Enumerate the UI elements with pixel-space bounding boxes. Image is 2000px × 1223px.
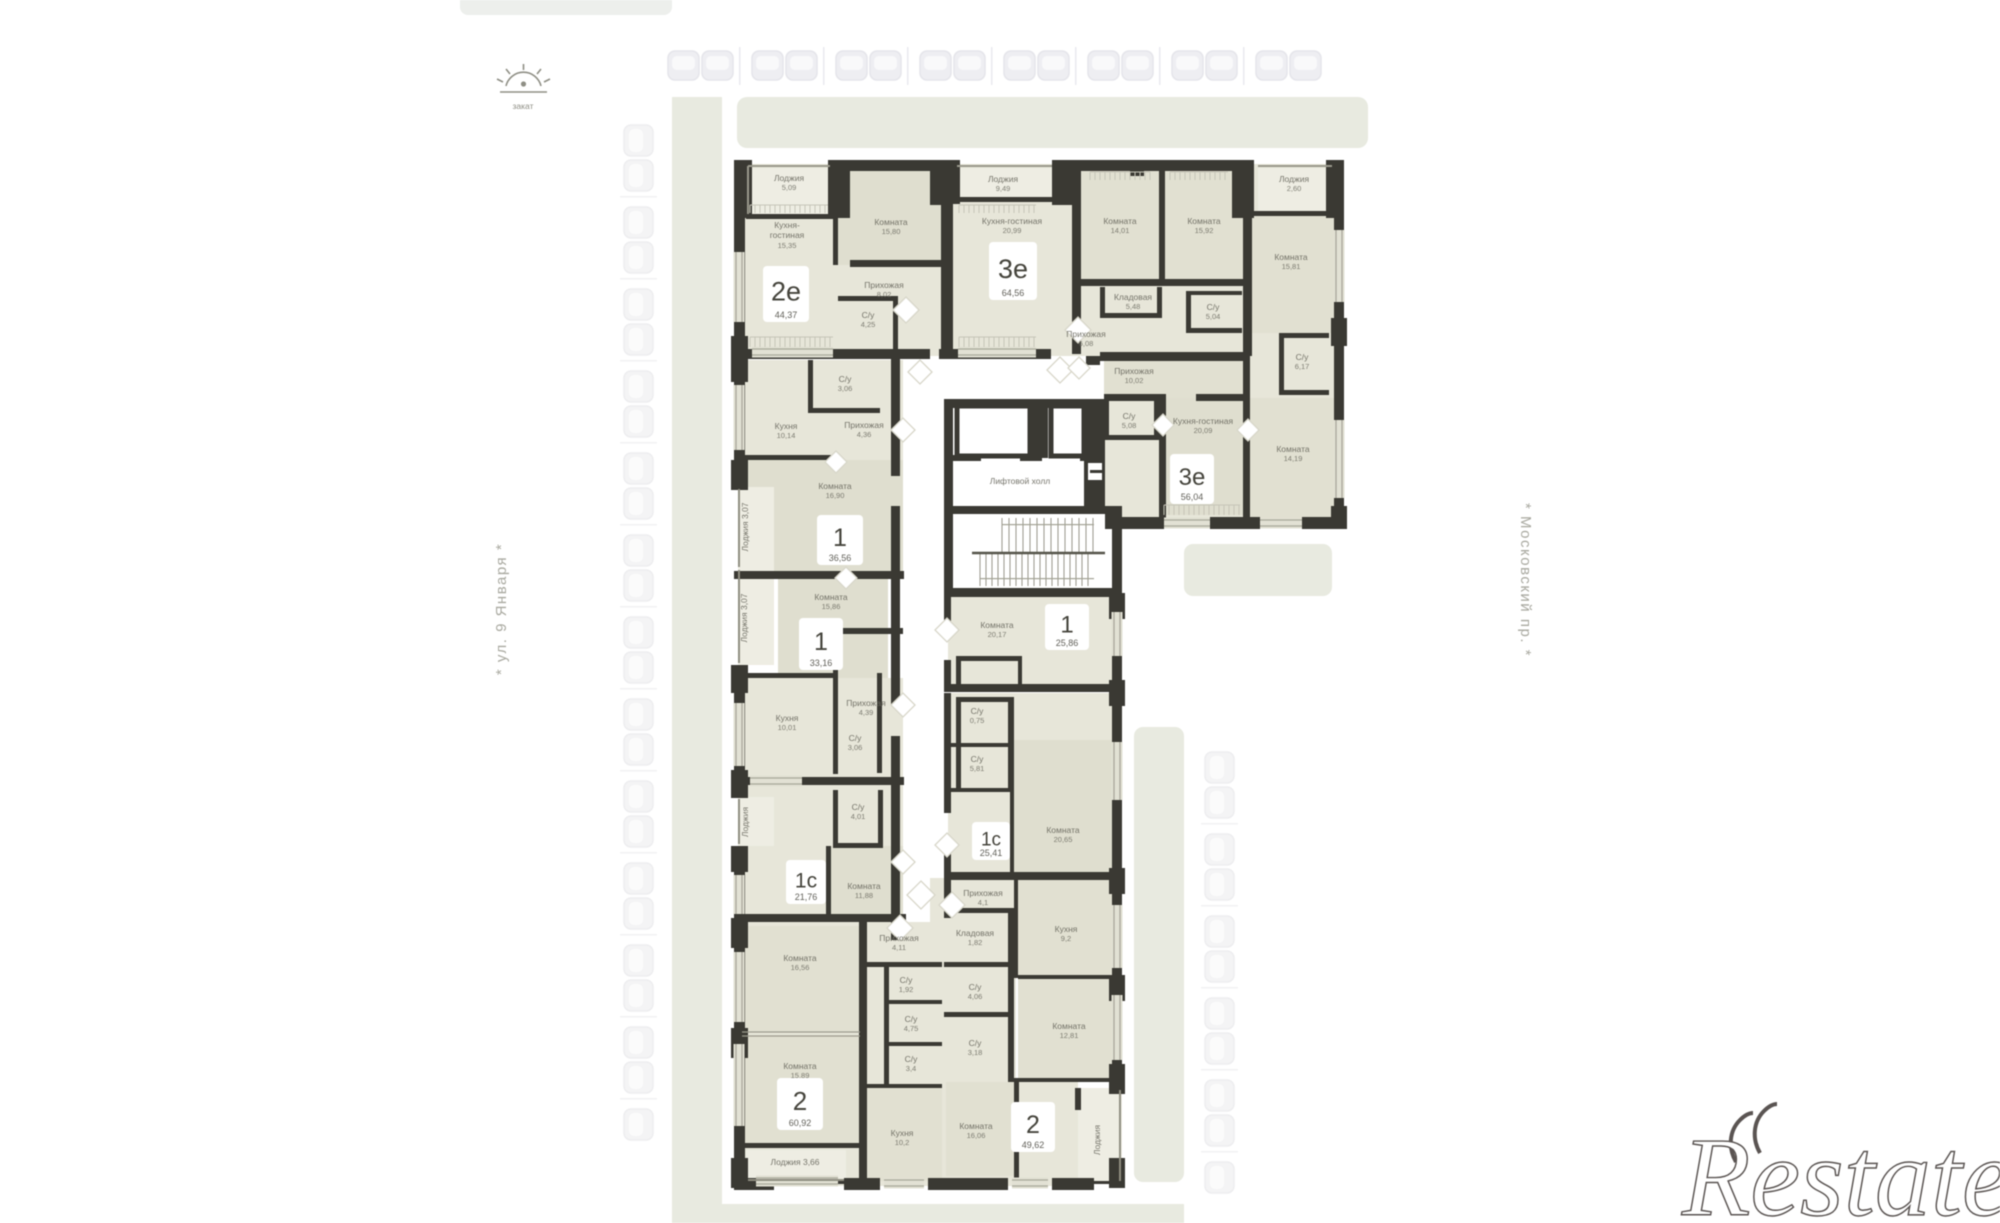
svg-text:12,81: 12,81	[1060, 1031, 1079, 1040]
svg-text:С/у: С/у	[905, 1054, 919, 1064]
svg-text:Кухня: Кухня	[1055, 924, 1078, 934]
svg-text:16,56: 16,56	[791, 963, 810, 972]
svg-text:Прихожая: Прихожая	[1066, 329, 1106, 339]
svg-text:Кладовая: Кладовая	[1114, 292, 1152, 302]
svg-text:закат: закат	[513, 101, 534, 111]
svg-text:Кухня: Кухня	[775, 421, 798, 431]
svg-text:14,01: 14,01	[1111, 226, 1130, 235]
svg-text:С/у: С/у	[849, 733, 863, 743]
svg-text:Комната: Комната	[1052, 1021, 1086, 1031]
svg-text:64,56: 64,56	[1002, 288, 1025, 298]
svg-text:10,01: 10,01	[778, 723, 797, 732]
svg-text:5,81: 5,81	[970, 764, 985, 773]
svg-text:С/у: С/у	[1207, 302, 1221, 312]
svg-text:20,99: 20,99	[1003, 226, 1022, 235]
svg-text:Комната: Комната	[783, 953, 817, 963]
svg-text:2: 2	[793, 1086, 807, 1116]
svg-text:25,86: 25,86	[1056, 638, 1079, 648]
svg-text:11,88: 11,88	[855, 891, 873, 900]
svg-text:С/у: С/у	[1123, 411, 1137, 421]
svg-text:Прихожая: Прихожая	[864, 280, 904, 290]
svg-text:Прихожая: Прихожая	[879, 933, 919, 943]
svg-text:Лоджия 3,07: Лоджия 3,07	[739, 593, 749, 642]
svg-text:6,08: 6,08	[1079, 339, 1094, 348]
svg-text:С/у: С/у	[862, 310, 876, 320]
svg-text:33,16: 33,16	[810, 658, 833, 668]
svg-text:Комната: Комната	[783, 1061, 817, 1071]
svg-text:Прихожая: Прихожая	[1114, 366, 1154, 376]
svg-text:Прихожая: Прихожая	[963, 888, 1003, 898]
svg-text:Прихожая: Прихожая	[844, 420, 884, 430]
svg-text:15,35: 15,35	[778, 241, 797, 250]
svg-text:20,17: 20,17	[988, 630, 1007, 639]
svg-text:С/у: С/у	[971, 754, 985, 764]
svg-text:16,06: 16,06	[967, 1131, 986, 1140]
svg-text:Комната: Комната	[814, 592, 848, 602]
svg-text:4,01: 4,01	[851, 812, 866, 821]
svg-text:Лоджия 3,07: Лоджия 3,07	[740, 502, 750, 551]
svg-text:Restate: Restate	[1681, 1116, 2000, 1223]
svg-text:15,92: 15,92	[1195, 226, 1214, 235]
svg-text:3,4: 3,4	[906, 1064, 916, 1073]
svg-text:4,75: 4,75	[904, 1024, 919, 1033]
svg-text:1,92: 1,92	[899, 985, 914, 994]
svg-text:Лоджия: Лоджия	[1092, 1125, 1102, 1156]
svg-text:5,04: 5,04	[1206, 312, 1221, 321]
svg-text:Прихожая: Прихожая	[846, 698, 886, 708]
svg-text:С/у: С/у	[971, 706, 985, 716]
svg-text:20,65: 20,65	[1054, 835, 1073, 844]
svg-text:Лоджия: Лоджия	[774, 173, 805, 183]
svg-text:9,49: 9,49	[996, 184, 1011, 193]
svg-text:Комната: Комната	[959, 1121, 993, 1131]
svg-text:1: 1	[833, 524, 847, 552]
svg-text:Комната: Комната	[847, 881, 881, 891]
svg-text:* Московский пр. *: * Московский пр. *	[1517, 503, 1534, 657]
svg-text:3е: 3е	[1179, 464, 1206, 491]
svg-text:36,56: 36,56	[829, 553, 852, 563]
svg-text:3,06: 3,06	[848, 743, 863, 752]
svg-text:С/у: С/у	[969, 982, 983, 992]
svg-text:* ул. 9 Января *: * ул. 9 Января *	[493, 543, 510, 675]
svg-text:3,18: 3,18	[968, 1048, 983, 1057]
svg-text:1: 1	[1060, 612, 1073, 639]
svg-text:14,19: 14,19	[1284, 454, 1303, 463]
svg-text:Кухня-: Кухня-	[774, 220, 800, 230]
svg-text:10,02: 10,02	[1125, 376, 1144, 385]
svg-text:4,06: 4,06	[968, 992, 983, 1001]
svg-text:4,1: 4,1	[978, 898, 988, 907]
svg-text:Кухня-гостиная: Кухня-гостиная	[982, 216, 1043, 226]
svg-text:4,36: 4,36	[857, 430, 872, 439]
svg-text:60,92: 60,92	[789, 1118, 812, 1128]
svg-text:56,04: 56,04	[1181, 492, 1204, 502]
svg-text:Лоджия: Лоджия	[988, 174, 1019, 184]
svg-text:8,02: 8,02	[877, 290, 892, 299]
svg-text:20,09: 20,09	[1194, 426, 1213, 435]
svg-text:5,09: 5,09	[782, 183, 797, 192]
svg-text:1: 1	[814, 628, 828, 656]
svg-text:Лоджия 3,66: Лоджия 3,66	[770, 1157, 819, 1167]
svg-text:1,82: 1,82	[968, 938, 983, 947]
svg-text:2,60: 2,60	[1287, 184, 1302, 193]
svg-text:С/у: С/у	[905, 1014, 919, 1024]
svg-text:Комната: Комната	[1103, 216, 1137, 226]
svg-text:Комната: Комната	[1046, 825, 1080, 835]
svg-text:С/у: С/у	[900, 975, 914, 985]
svg-text:4,39: 4,39	[859, 708, 874, 717]
svg-text:3,06: 3,06	[838, 384, 853, 393]
svg-text:Комната: Комната	[1276, 444, 1310, 454]
svg-text:15,80: 15,80	[882, 227, 901, 236]
svg-text:гостиная: гостиная	[770, 230, 805, 240]
svg-text:С/у: С/у	[839, 374, 853, 384]
svg-text:С/у: С/у	[852, 802, 866, 812]
svg-text:2е: 2е	[771, 277, 801, 307]
svg-text:1с: 1с	[795, 869, 817, 892]
svg-text:10,14: 10,14	[777, 431, 796, 440]
svg-text:5,08: 5,08	[1122, 421, 1137, 430]
svg-text:4,11: 4,11	[892, 943, 906, 952]
svg-text:Кухня: Кухня	[891, 1128, 914, 1138]
svg-text:Лоджия: Лоджия	[740, 807, 750, 838]
svg-text:44,37: 44,37	[775, 310, 798, 320]
svg-text:2: 2	[1026, 1111, 1040, 1139]
svg-text:10,2: 10,2	[895, 1138, 910, 1147]
svg-text:4,25: 4,25	[861, 320, 876, 329]
svg-text:21,76: 21,76	[795, 892, 818, 902]
svg-text:Кухня: Кухня	[776, 713, 799, 723]
svg-text:Лоджия: Лоджия	[1279, 174, 1310, 184]
svg-text:49,62: 49,62	[1022, 1140, 1045, 1150]
svg-text:Комната: Комната	[874, 217, 908, 227]
svg-text:Кухня-гостиная: Кухня-гостиная	[1173, 416, 1234, 426]
svg-text:Кладовая: Кладовая	[956, 928, 994, 938]
svg-text:С/у: С/у	[969, 1038, 983, 1048]
svg-text:25,41: 25,41	[980, 848, 1003, 858]
svg-text:15,81: 15,81	[1282, 262, 1301, 271]
svg-text:Комната: Комната	[1274, 252, 1308, 262]
svg-text:0,75: 0,75	[970, 716, 985, 725]
svg-text:3е: 3е	[998, 254, 1028, 284]
svg-text:Комната: Комната	[980, 620, 1014, 630]
svg-text:6,17: 6,17	[1295, 362, 1310, 371]
svg-text:Комната: Комната	[1187, 216, 1221, 226]
svg-text:16,90: 16,90	[826, 491, 845, 500]
svg-text:9,2: 9,2	[1061, 934, 1071, 943]
svg-text:Комната: Комната	[818, 481, 852, 491]
svg-text:5,48: 5,48	[1126, 302, 1141, 311]
svg-text:15,86: 15,86	[822, 602, 841, 611]
svg-text:Лифтовой холл: Лифтовой холл	[990, 476, 1051, 486]
svg-text:С/у: С/у	[1296, 352, 1310, 362]
